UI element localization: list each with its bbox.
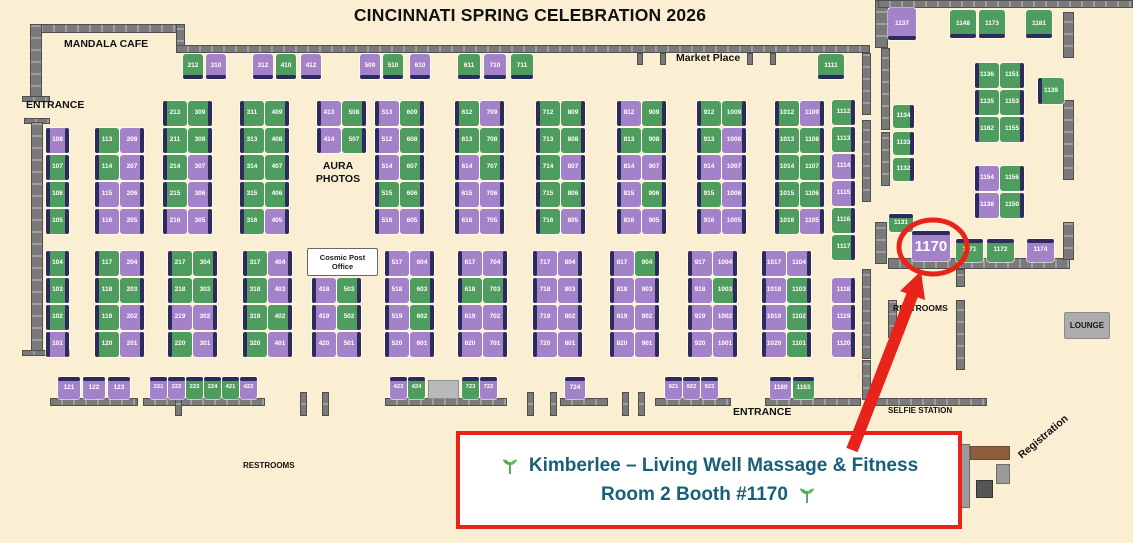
booth-edge [851,278,855,303]
booth-514: 514 [375,155,399,180]
booth-edge [956,239,983,243]
booth-number: 704 [490,260,501,267]
booth-edge [458,278,462,303]
booth-218: 218 [168,278,192,303]
booth-809: 809 [561,101,585,126]
booth-edge [536,209,540,234]
booth-number: 605 [407,218,418,225]
booth-number: 519 [392,314,403,321]
booth-804: 804 [558,251,582,276]
booth-519: 519 [385,305,409,330]
booth-edge [742,101,746,126]
booth-922: 922 [683,377,700,399]
booth-304: 304 [193,251,217,276]
booth-edge [1027,239,1054,243]
callout-box: Kimberlee – Living Well Massage & Fitnes… [456,431,962,529]
booth-207: 207 [120,155,144,180]
booth-320: 320 [243,332,267,357]
booth-number: 218 [175,287,186,294]
booth-edge [455,128,459,153]
booth-number: 609 [407,110,418,117]
booth-401: 401 [268,332,292,357]
booth-418: 418 [312,278,336,303]
booth-number: 306 [195,191,206,198]
booth-1118: 1118 [832,278,855,303]
wall-segment [31,122,43,352]
booth-617: 617 [458,251,482,276]
booth-edge [820,182,824,207]
booth-number: 1117 [837,244,851,251]
booth-302: 302 [193,305,217,330]
booth-edge [581,128,585,153]
booth-917: 917 [688,251,712,276]
booth-number: 803 [565,287,576,294]
restrooms-right-label: RESTROOMS [893,303,948,314]
booth-number: 1001 [718,341,732,348]
booth-921: 921 [665,377,682,399]
booth-edge [430,332,434,357]
booth-edge [285,101,289,126]
booth-number: 1153 [1005,99,1019,106]
booth-number: 421 [226,385,236,391]
booth-number: 117 [102,260,113,267]
booth-edge [581,182,585,207]
wall-segment [637,53,643,65]
booth-101: 101 [46,332,69,357]
booth-807: 807 [561,155,585,180]
booth-318: 318 [243,278,267,303]
booth-number: 304 [200,260,211,267]
registration-desk-part [996,464,1010,484]
booth-number: 901 [642,341,653,348]
booth-edge [533,278,537,303]
registration-label: Registration [1016,413,1071,462]
booth-number: 510 [388,63,399,70]
booth-number: 513 [382,110,393,117]
booth-edge [83,377,105,381]
booth-edge [208,128,212,153]
booth-number: 412 [306,63,317,70]
booth-edge [95,305,99,330]
booth-edge [617,182,621,207]
booth-number: 606 [407,191,418,198]
booth-number: 607 [407,164,418,171]
booth-edge [168,278,172,303]
booth-edge [688,305,692,330]
booth-number: 1181 [1032,21,1046,28]
booth-310: 310 [206,54,226,79]
booth-1136: 1136 [975,63,999,88]
booth-edge [1026,34,1052,38]
booth-803: 803 [558,278,582,303]
booth-1151: 1151 [1000,63,1024,88]
booth-edge [503,332,507,357]
booth-edge [851,100,855,125]
wall-segment [1063,12,1074,58]
booth-422: 422 [240,377,257,399]
booth-edge [168,251,172,276]
booth-edge [733,278,737,303]
booth-edge [742,128,746,153]
booth-number: 1112 [837,109,851,116]
booth-319: 319 [243,305,267,330]
booth-614: 614 [455,155,479,180]
booth-edge [140,278,144,303]
booth-number: 1136 [980,72,994,79]
booth-edge [163,209,167,234]
booth-1018: 1018 [762,278,786,303]
booth-number: 618 [465,287,476,294]
booth-number: 805 [568,218,579,225]
booth-201: 201 [120,332,144,357]
booth-number: 1018 [767,287,781,294]
booth-edge [578,278,582,303]
booth-edge [697,101,701,126]
booth-907: 907 [642,155,666,180]
booth-number: 919 [695,314,706,321]
booth-number: 616 [462,218,473,225]
booth-number: 1154 [980,175,994,182]
wall-segment [1063,222,1074,260]
booth-edge [770,377,791,381]
booth-1012: 1012 [775,101,799,126]
booth-121: 121 [58,377,80,399]
booth-number: 817 [617,260,628,267]
booth-311: 311 [240,101,264,126]
booth-1138: 1138 [975,193,999,218]
booth-1134: 1134 [893,105,914,128]
booth-1014: 1014 [775,155,799,180]
booth-number: 212 [188,63,199,70]
booth-number: 515 [382,191,393,198]
wall-segment [862,53,871,115]
booth-number: 922 [687,385,697,391]
booth-number: 223 [190,385,200,391]
booth-edge [65,278,69,303]
booth-number: 711 [517,63,528,70]
booth-number: 1170 [915,239,948,254]
booth-510: 510 [383,54,403,79]
booth-edge [375,101,379,126]
wall-segment [30,24,180,33]
booth-edge [458,332,462,357]
booth-number: 207 [127,164,138,171]
booth-edge [851,181,855,206]
booth-edge [581,209,585,234]
booth-edge [610,251,614,276]
booth-706: 706 [480,182,504,207]
booth-number: 806 [568,191,579,198]
booth-number: 723 [466,385,476,391]
booth-edge [665,377,682,381]
booth-edge [222,377,239,381]
booth-edge [140,155,144,180]
booth-709: 709 [480,101,504,126]
booth-604: 604 [410,251,434,276]
wall-segment [176,45,870,53]
booth-edge [455,209,459,234]
booth-515: 515 [375,182,399,207]
booth-914: 914 [697,155,721,180]
lounge-label: LOUNGE [1064,312,1110,339]
booth-number: 318 [250,287,261,294]
booth-edge [240,128,244,153]
booth-edge [820,209,824,234]
booth-edge [362,101,366,126]
booth-number: 1102 [792,314,806,321]
booth-edge [688,251,692,276]
booth-1114: 1114 [832,154,855,179]
booth-106: 106 [46,182,69,207]
booth-number: 720 [540,341,551,348]
callout-vendor-name: Kimberlee – Living Well Massage & Fitnes… [529,455,918,477]
booth-edge [775,101,779,126]
booth-1117: 1117 [832,235,855,260]
booth-number: 1019 [767,314,781,321]
booth-number: 311 [247,110,258,117]
booth-edge [503,251,507,276]
booth-412: 412 [301,54,321,79]
wall-segment [385,398,507,406]
booth-716: 716 [536,209,560,234]
booth-1148: 1148 [950,10,976,38]
booth-edge [243,332,247,357]
booth-1113: 1113 [832,127,855,152]
booth-616: 616 [455,209,479,234]
booth-1003: 1003 [713,278,737,303]
booth-613: 613 [455,128,479,153]
booth-edge [58,377,80,381]
booth-1005: 1005 [722,209,746,234]
booth-number: 201 [127,341,138,348]
booth-1115: 1115 [832,181,855,206]
booth-edge [95,155,99,180]
booth-edge [617,209,621,234]
booth-edge [168,332,172,357]
booth-edge [375,155,379,180]
booth-edge [408,377,425,381]
booth-number: 502 [344,314,355,321]
booth-1172: 1172 [987,239,1014,262]
booth-1116: 1116 [832,208,855,233]
booth-number: 216 [170,218,181,225]
booth-edge [533,332,537,357]
wall-segment [956,269,965,287]
booth-number: 1172 [993,247,1007,254]
booth-edge [140,128,144,153]
booth-301: 301 [193,332,217,357]
booth-number: 702 [490,314,501,321]
booth-number: 1020 [767,341,781,348]
cosmic-post-office-label: Cosmic Post Office [307,248,378,276]
booth-1131: 1131 [889,214,913,232]
booth-edge [375,209,379,234]
booth-1007: 1007 [722,155,746,180]
booth-918: 918 [688,278,712,303]
wall-segment [878,0,1133,8]
booth-edge [140,332,144,357]
booth-edge [95,332,99,357]
booth-710: 710 [484,54,506,79]
booth-number: 921 [669,385,679,391]
wall-segment [875,398,987,406]
booth-1017: 1017 [762,251,786,276]
booth-117: 117 [95,251,119,276]
booth-number: 214 [170,164,181,171]
booth-1101: 1101 [787,332,811,357]
booth-number: 709 [487,110,498,117]
wall-segment [881,48,890,130]
booth-edge [420,128,424,153]
booth-1009: 1009 [722,101,746,126]
booth-edge [208,182,212,207]
wall-segment [655,398,731,406]
booth-number: 1005 [727,218,741,225]
booth-edge [140,182,144,207]
booth-number: 705 [487,218,498,225]
booth-edge [455,155,459,180]
booth-219: 219 [168,305,192,330]
aura-photos-label: AURA PHOTOS [303,160,373,186]
booth-number: 206 [127,191,138,198]
booth-number: 403 [275,287,286,294]
booth-edge [46,155,50,180]
booth-802: 802 [558,305,582,330]
booth-312: 312 [253,54,273,79]
booth-number: 101 [52,341,63,348]
booth-714: 714 [536,155,560,180]
booth-1156: 1156 [1000,166,1024,191]
booth-edge [1020,166,1024,191]
booth-703: 703 [483,278,507,303]
booth-number: 1120 [836,341,850,348]
booth-1105: 1105 [800,209,824,234]
booth-edge [312,305,316,330]
booth-717: 717 [533,251,557,276]
booth-number: 706 [487,191,498,198]
booth-number: 814 [624,164,635,171]
booth-203: 203 [120,278,144,303]
booth-number: 402 [275,314,286,321]
booth-edge [807,332,811,357]
market-place-label: Market Place [676,52,740,65]
booth-edge [186,377,203,381]
wall-segment [550,392,557,416]
booth-edge [503,305,507,330]
booth-208: 208 [120,128,144,153]
booth-1170: 1170 [912,231,950,261]
booth-edge [357,305,361,330]
booth-number: 916 [704,218,715,225]
booth-edge [46,128,50,153]
booth-424: 424 [408,377,425,399]
booth-edge [1020,193,1024,218]
booth-number: 1103 [792,287,806,294]
booth-number: 221 [154,385,164,391]
booth-number: 620 [465,341,476,348]
booth-number: 714 [543,164,554,171]
booth-403: 403 [268,278,292,303]
booth-216: 216 [163,209,187,234]
booth-1120: 1120 [832,332,855,357]
booth-number: 718 [540,287,551,294]
booth-edge [46,278,50,303]
booth-number: 601 [417,341,428,348]
booth-edge [818,75,844,79]
wall-segment [765,398,861,406]
booth-edge [578,332,582,357]
booth-number: 1111 [824,63,837,70]
booth-number: 613 [462,137,473,144]
booth-edge [360,75,380,79]
booth-618: 618 [458,278,482,303]
booth-723: 723 [462,377,479,399]
booth-1002: 1002 [713,305,737,330]
booth-number: 815 [624,191,635,198]
wall-segment [862,120,871,202]
booth-edge [46,182,50,207]
booth-120: 120 [95,332,119,357]
wall-segment [50,398,138,406]
booth-edge [762,305,766,330]
booth-edge [617,128,621,153]
booth-number: 308 [195,137,206,144]
booth-512: 512 [375,128,399,153]
booth-edge [655,332,659,357]
booth-404: 404 [268,251,292,276]
booth-number: 703 [490,287,501,294]
entrance-left-label: ENTRANCE [26,99,84,112]
booth-114: 114 [95,155,119,180]
booth-edge [65,209,69,234]
booth-1001: 1001 [713,332,737,357]
booth-edge [581,155,585,180]
booth-edge [390,377,407,381]
booth-222: 222 [168,377,185,399]
booth-806: 806 [561,182,585,207]
booth-edge [480,377,497,381]
leaf-icon [500,456,520,476]
booth-204: 204 [120,251,144,276]
booth-edge [820,101,824,126]
booth-number: 801 [565,341,576,348]
booth-number: 819 [617,314,628,321]
booth-619: 619 [458,305,482,330]
booth-number: 1109 [805,110,819,117]
booth-edge [975,117,979,142]
booth-edge [253,75,273,79]
event-title: CINCINNATI SPRING CELEBRATION 2026 [320,5,740,26]
booth-edge [500,155,504,180]
booth-edge [655,305,659,330]
booth-number: 420 [319,341,330,348]
booth-edge [889,214,913,218]
booth-number: 303 [200,287,211,294]
booth-1020: 1020 [762,332,786,357]
booth-edge [95,209,99,234]
booth-102: 102 [46,305,69,330]
booth-number: 1150 [1005,202,1019,209]
booth-214: 214 [163,155,187,180]
booth-number: 219 [175,314,186,321]
booth-edge [455,182,459,207]
booth-number: 1003 [718,287,732,294]
booth-edge [683,377,700,381]
booth-611: 611 [458,54,480,79]
booth-702: 702 [483,305,507,330]
wall-segment [660,53,666,65]
booth-edge [168,377,185,381]
